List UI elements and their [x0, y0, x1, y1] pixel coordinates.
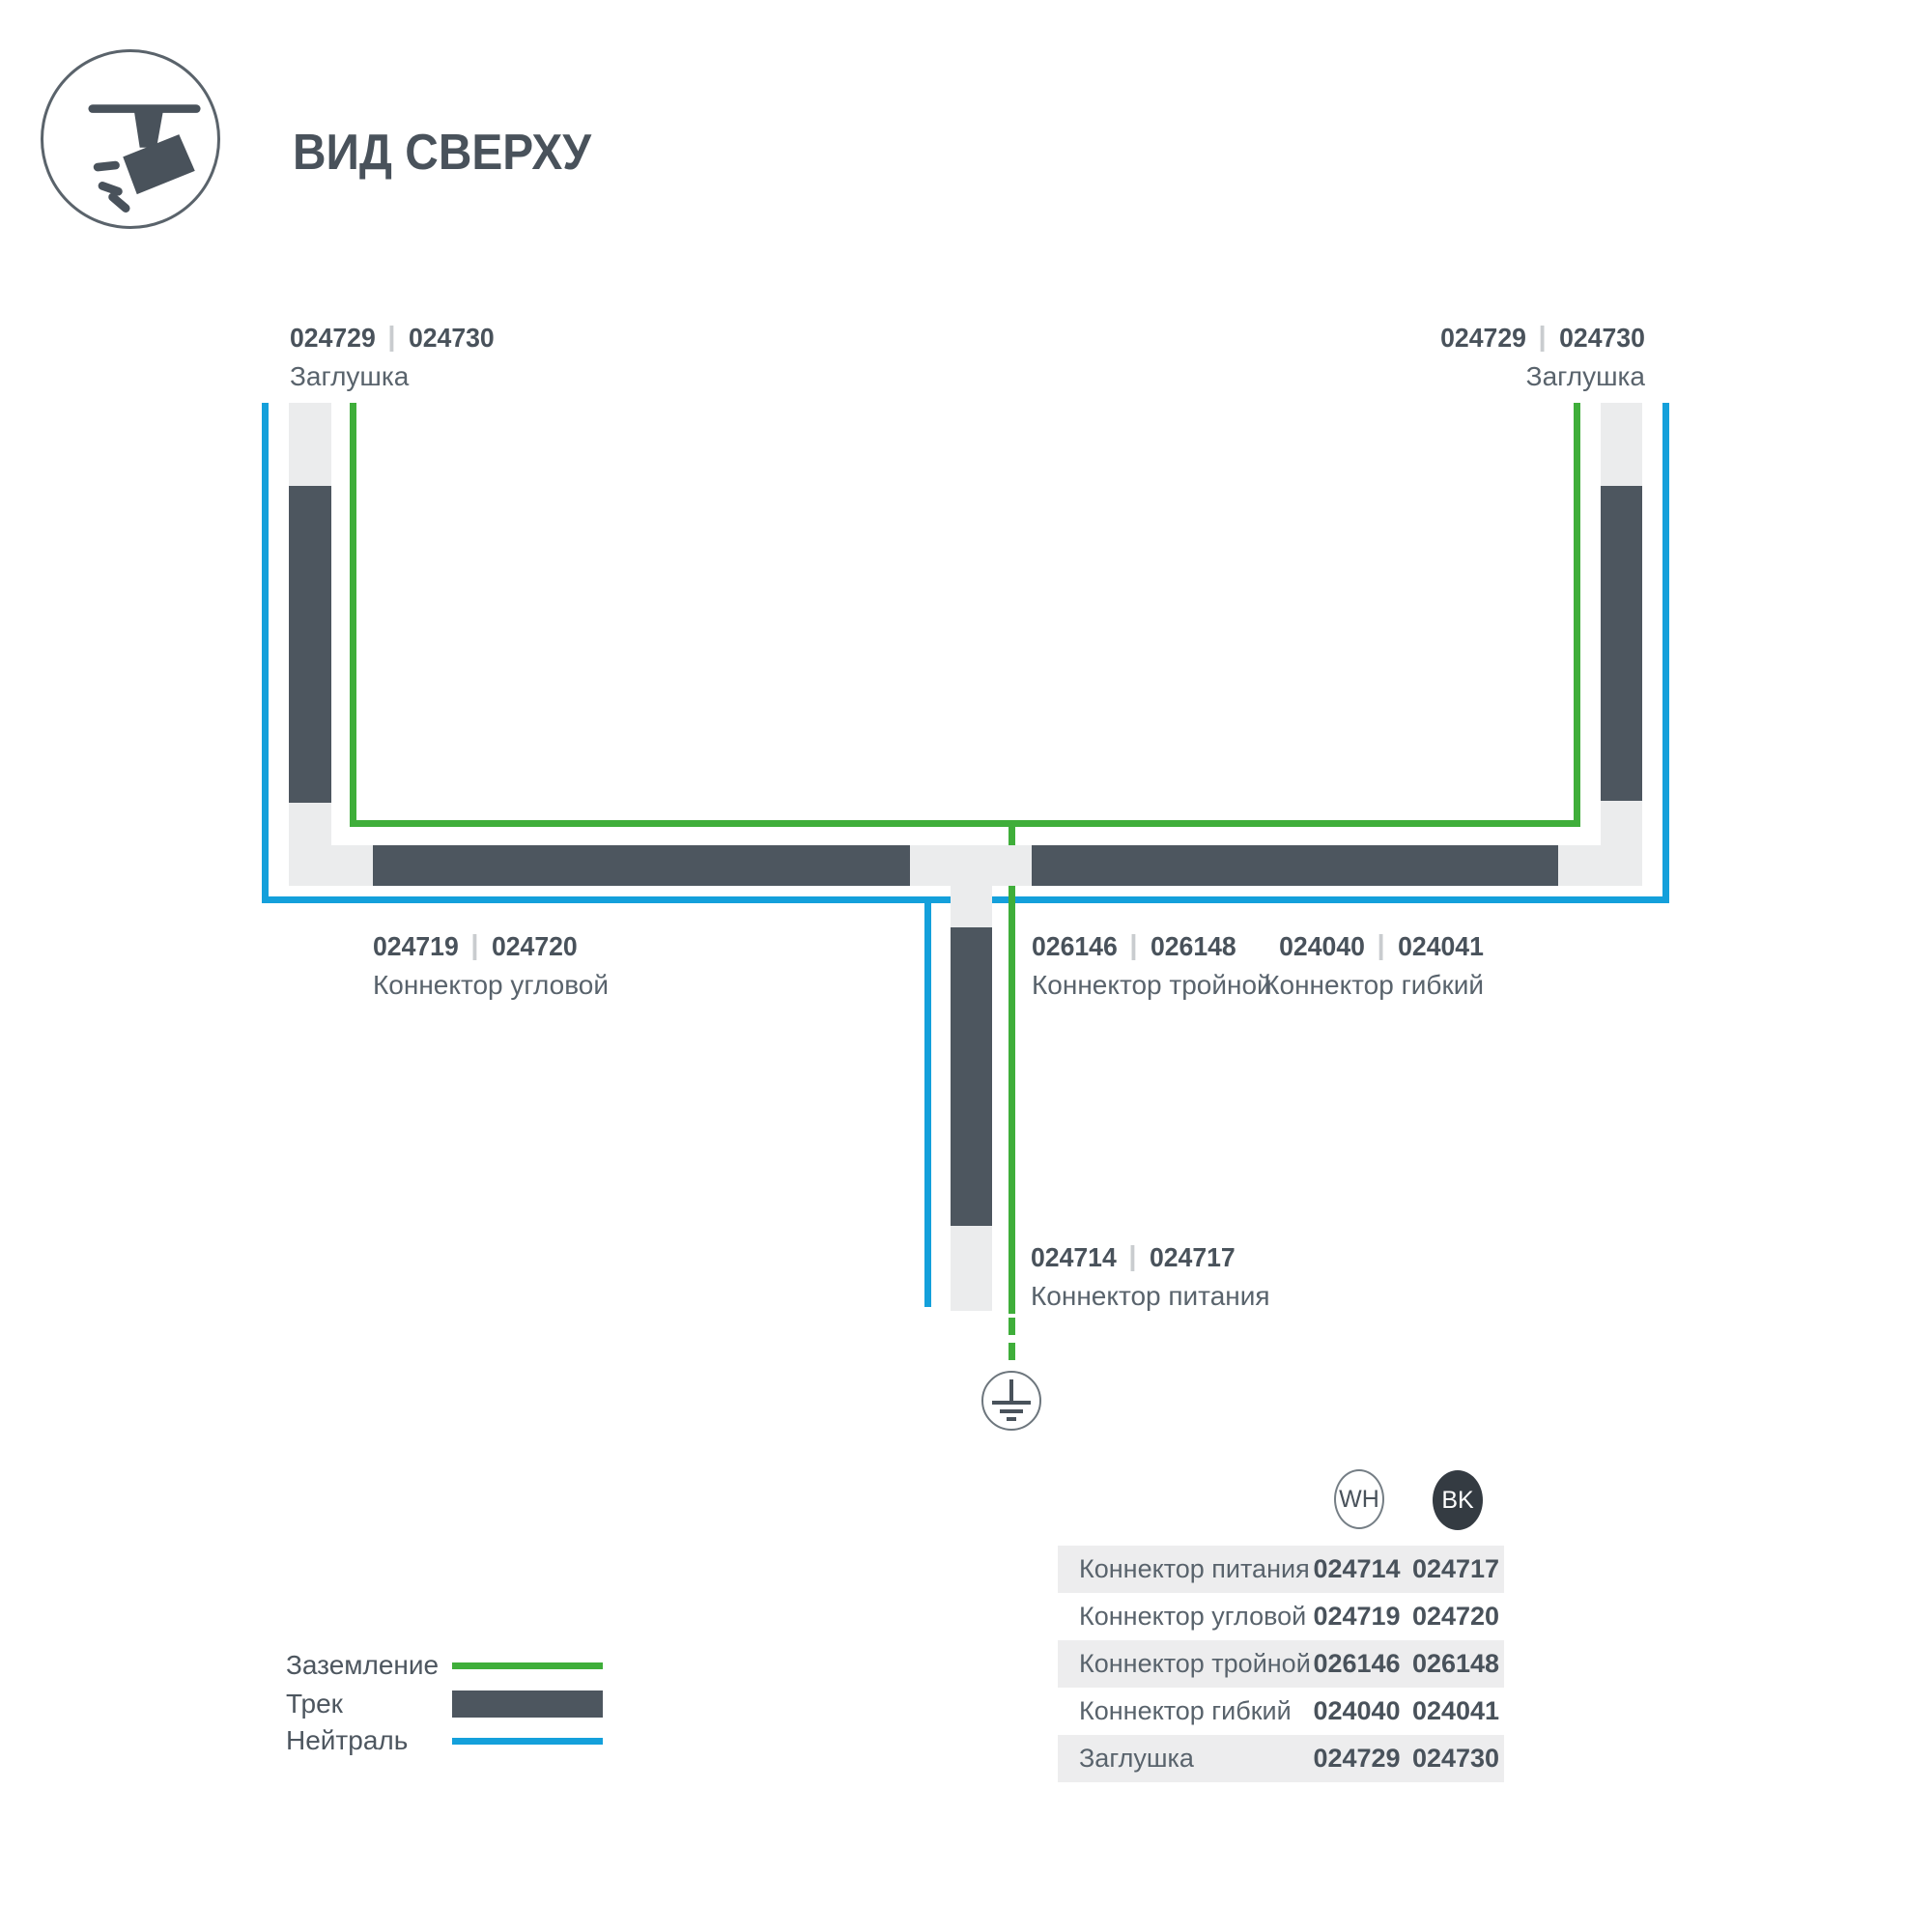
track-spotlight-icon — [41, 49, 220, 229]
label-endcap-right-name: Заглушка — [1526, 361, 1645, 392]
feed-stem-rail — [951, 927, 992, 1226]
ground-wire-left-vertical — [350, 403, 356, 827]
label-flex-connector: 024040 024041 Коннектор гибкий — [1264, 931, 1484, 1001]
code-bk: 024041 — [1398, 931, 1484, 962]
row-code-wh: 024719 — [1306, 1602, 1407, 1632]
code-wh: 026146 — [1032, 931, 1118, 962]
code-bk: 024730 — [409, 323, 495, 354]
track-spotlight-icon-glyph — [43, 52, 217, 226]
label-flex-codes: 024040 024041 — [1279, 931, 1484, 962]
row-code-wh: 024040 — [1306, 1696, 1407, 1726]
table-row: Заглушка 024729 024730 — [1058, 1735, 1504, 1782]
divider — [1131, 1245, 1135, 1271]
legend-swatch-track — [452, 1690, 603, 1718]
label-endcap-left-codes: 024729 024730 — [290, 323, 495, 354]
label-corner-name: Коннектор угловой — [373, 970, 609, 1001]
earth-ground-symbol — [981, 1371, 1041, 1431]
ground-wire-right-vertical — [1574, 403, 1580, 827]
neutral-wire-feed-drop — [924, 903, 931, 1307]
label-endcap-right-codes: 024729 024730 — [1440, 323, 1645, 354]
table-row: Коннектор гибкий 024040 024041 — [1058, 1688, 1504, 1735]
row-code-wh: 024729 — [1306, 1744, 1407, 1774]
code-wh: 024714 — [1031, 1242, 1117, 1273]
page-title: ВИД СВЕРХУ — [293, 124, 591, 182]
neutral-wire-left-vertical — [262, 403, 269, 903]
label-triple-name: Коннектор тройной — [1032, 970, 1272, 1001]
divider — [1379, 934, 1383, 960]
code-wh: 024040 — [1279, 931, 1365, 962]
divider — [1541, 326, 1545, 352]
row-name: Коннектор питания — [1058, 1554, 1306, 1584]
row-code-bk: 024720 — [1407, 1602, 1504, 1632]
label-endcap-left: 024729 024730 Заглушка — [290, 323, 505, 392]
label-corner-codes: 024719 024720 — [373, 931, 597, 962]
label-power-name: Коннектор питания — [1031, 1281, 1270, 1312]
legend-swatch-ground — [452, 1662, 603, 1669]
ground-wire-horizontal — [350, 820, 1580, 827]
divider — [1132, 934, 1136, 960]
row-code-bk: 026148 — [1407, 1649, 1504, 1679]
track-horizontal-left-segment — [373, 845, 910, 886]
legend-swatch-neutral — [452, 1738, 603, 1745]
row-name: Заглушка — [1058, 1744, 1306, 1774]
corner-connector-left — [331, 845, 373, 886]
row-name: Коннектор угловой — [1058, 1602, 1306, 1632]
row-code-bk: 024730 — [1407, 1744, 1504, 1774]
legend-label-ground: Заземление — [286, 1650, 439, 1681]
label-triple-codes: 026146 026148 — [1032, 931, 1260, 962]
diagram-page: ВИД СВЕРХУ 024729 — [0, 0, 1932, 1932]
track-right-rail — [1601, 486, 1642, 801]
code-bk: 024720 — [492, 931, 578, 962]
row-code-wh: 026146 — [1306, 1649, 1407, 1679]
row-name: Коннектор гибкий — [1058, 1696, 1306, 1726]
table-row: Коннектор угловой 024719 024720 — [1058, 1593, 1504, 1640]
divider — [473, 934, 477, 960]
label-endcap-left-name: Заглушка — [290, 361, 505, 392]
color-badge-black: BK — [1433, 1470, 1483, 1530]
legend-label-neutral: Нейтраль — [286, 1725, 408, 1756]
row-name: Коннектор тройной — [1058, 1649, 1306, 1679]
row-code-bk: 024717 — [1407, 1554, 1504, 1584]
code-wh: 024729 — [1440, 323, 1526, 354]
code-bk: 024730 — [1559, 323, 1645, 354]
code-wh: 024729 — [290, 323, 376, 354]
neutral-wire-right-vertical — [1662, 403, 1669, 903]
track-left-rail — [289, 486, 331, 803]
label-triple-connector: 026146 026148 Коннектор тройной — [1032, 931, 1272, 1001]
table-row: Коннектор питания 024714 024717 — [1058, 1546, 1504, 1593]
row-code-bk: 024041 — [1407, 1696, 1504, 1726]
label-flex-name: Коннектор гибкий — [1264, 970, 1484, 1001]
earth-ground-glyph — [983, 1373, 1039, 1429]
code-bk: 024717 — [1150, 1242, 1236, 1273]
label-power-codes: 024714 024717 — [1031, 1242, 1258, 1273]
label-endcap-right: 024729 024730 Заглушка — [1430, 323, 1645, 392]
legend-label-track: Трек — [286, 1689, 343, 1719]
flex-connector-right — [1558, 845, 1601, 886]
ground-wire-dashed-tail — [1009, 1318, 1015, 1362]
track-horizontal-right-segment — [1032, 845, 1558, 886]
color-badge-white: WH — [1334, 1469, 1384, 1529]
row-code-wh: 024714 — [1306, 1554, 1407, 1584]
ground-wire-feed-drop — [1009, 827, 1015, 1314]
divider — [390, 326, 394, 352]
label-power-connector: 024714 024717 Коннектор питания — [1031, 1242, 1270, 1312]
table-row: Коннектор тройной 026146 026148 — [1058, 1640, 1504, 1688]
label-corner-connector: 024719 024720 Коннектор угловой — [373, 931, 609, 1001]
code-bk: 026148 — [1151, 931, 1236, 962]
code-wh: 024719 — [373, 931, 459, 962]
